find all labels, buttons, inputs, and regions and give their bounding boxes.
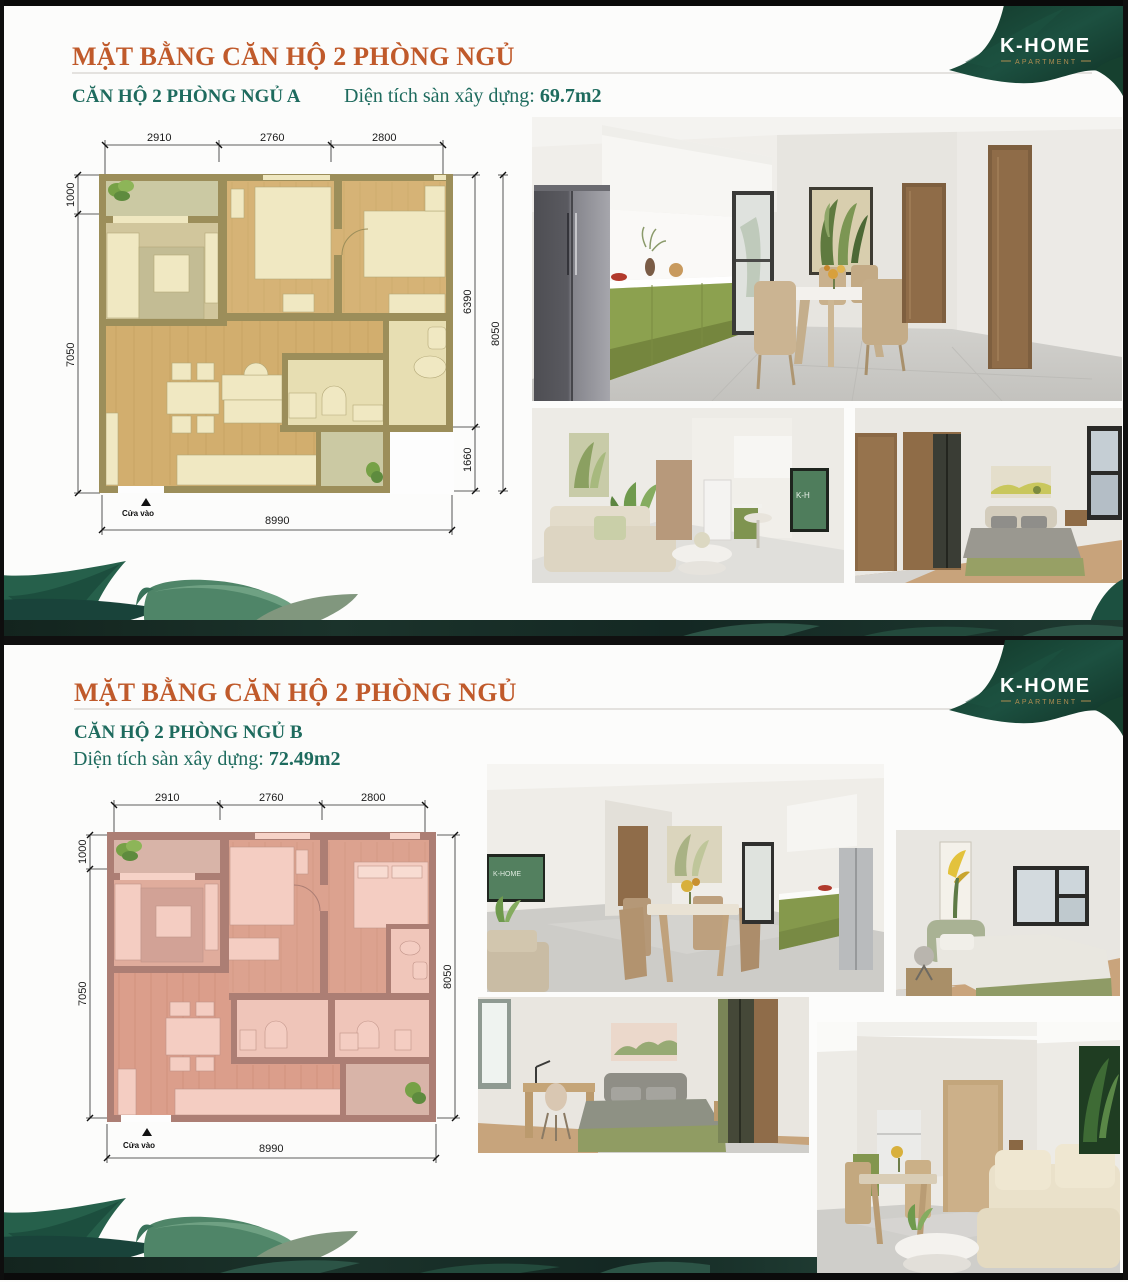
svg-text:2760: 2760	[260, 132, 284, 144]
svg-text:8990: 8990	[259, 1143, 283, 1155]
svg-text:7050: 7050	[65, 343, 77, 367]
svg-text:Cửa vào: Cửa vào	[122, 509, 154, 518]
svg-text:1000: 1000	[77, 840, 89, 864]
svg-text:1000: 1000	[65, 183, 77, 207]
svg-text:Cửa vào: Cửa vào	[123, 1141, 155, 1150]
svg-text:2800: 2800	[372, 132, 396, 144]
svg-text:1660: 1660	[462, 448, 474, 472]
svg-text:8050: 8050	[442, 965, 454, 989]
svg-text:2800: 2800	[361, 792, 385, 804]
svg-text:APARTMENT: APARTMENT	[1015, 699, 1077, 706]
svg-text:K-H: K-H	[796, 491, 810, 500]
svg-text:2760: 2760	[259, 792, 283, 804]
svg-text:8050: 8050	[490, 322, 502, 346]
svg-text:APARTMENT: APARTMENT	[1015, 59, 1077, 66]
svg-text:K-HOME: K-HOME	[493, 871, 521, 878]
svg-text:2910: 2910	[147, 132, 171, 144]
svg-text:8990: 8990	[265, 515, 289, 527]
svg-text:K-HOME: K-HOME	[1000, 35, 1091, 57]
svg-text:7050: 7050	[77, 982, 89, 1006]
svg-text:2910: 2910	[155, 792, 179, 804]
svg-text:K-HOME: K-HOME	[1000, 675, 1091, 697]
svg-text:6390: 6390	[462, 290, 474, 314]
